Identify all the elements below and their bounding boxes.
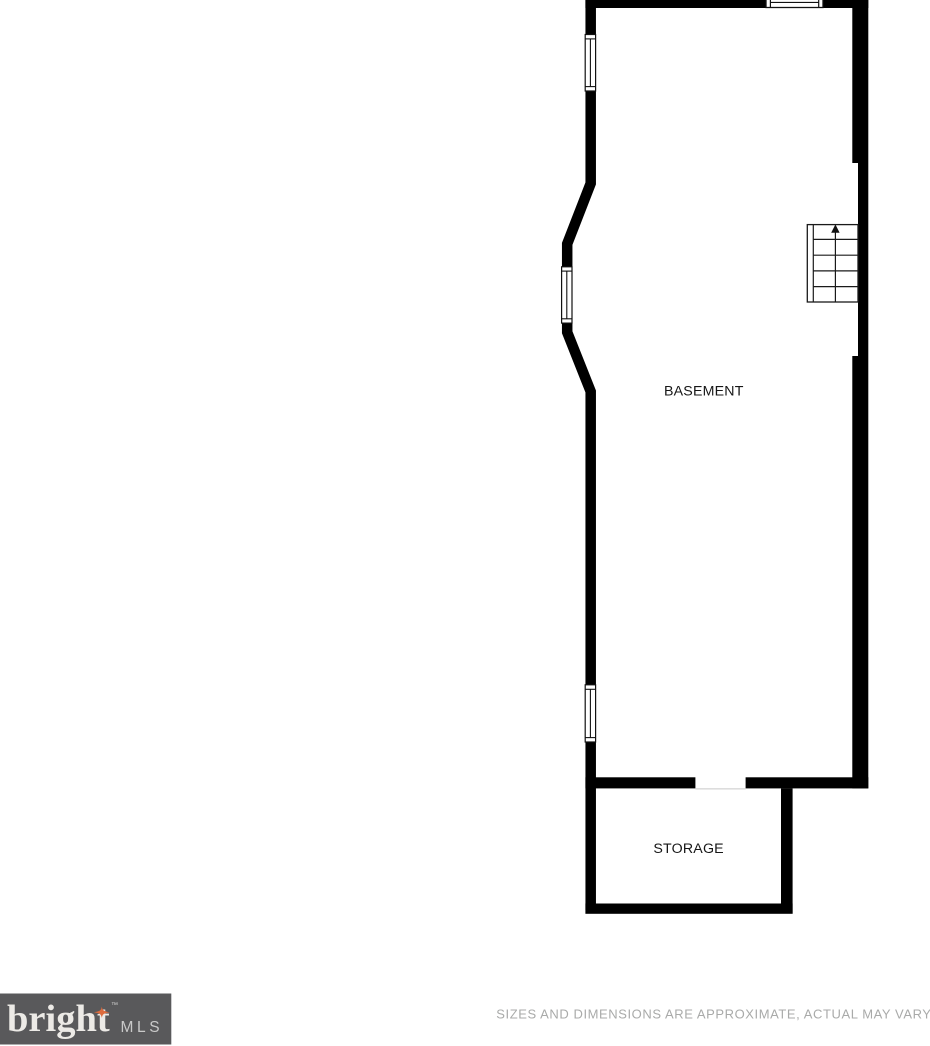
svg-text:™: ™	[111, 1002, 118, 1009]
svg-text:BASEMENT: BASEMENT	[664, 384, 744, 400]
svg-text:STORAGE: STORAGE	[653, 841, 724, 857]
svg-text:SIZES AND DIMENSIONS ARE APPRO: SIZES AND DIMENSIONS ARE APPROXIMATE, AC…	[496, 1006, 930, 1021]
svg-text:MLS: MLS	[121, 1019, 164, 1036]
svg-text:bright: bright	[7, 998, 110, 1040]
